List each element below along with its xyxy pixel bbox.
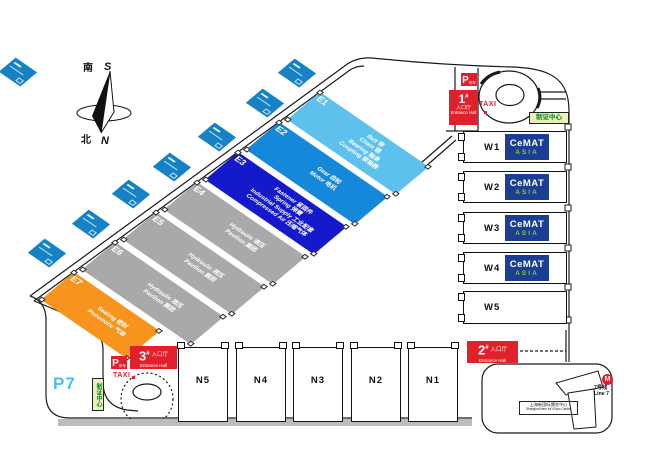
metro-station-name: 上海新国际博览中心 Shanghai New Int'l Expo Centre [519, 401, 578, 415]
hall-label: W1 [484, 142, 500, 153]
area-marking [169, 172, 178, 179]
hall-w3: W3CeMATASIA [463, 212, 567, 244]
hall-label: N4 [254, 375, 268, 386]
taxi-mark-icon [484, 111, 487, 114]
roundabout-1-inner [496, 85, 524, 106]
cemat-asia-text: ASIA [505, 149, 549, 156]
entrance-hall-1: 1# 入口厅 Entrance Hall [449, 90, 478, 125]
cemat-asia-text: ASIA [505, 230, 549, 237]
hall-n5: N5 [178, 347, 228, 422]
roundabout-1-stub [539, 92, 566, 99]
hall-n4: N4 [236, 347, 286, 422]
taxi-mark-icon [132, 376, 135, 379]
cemat-logo-text: CeMAT [505, 139, 549, 149]
area-marking [14, 62, 22, 68]
area-marking [293, 63, 301, 69]
hall-w5: W5 [463, 291, 567, 324]
cemat-logo-text: CeMAT [505, 260, 549, 270]
area-marking [123, 188, 137, 198]
entrance-2-en: Entrance Hall [467, 358, 518, 363]
hall-label: W4 [484, 263, 500, 274]
taxi-label: TAXI [113, 372, 130, 379]
entrance-hall-2: 2# 入口厅 Entrance Hall [467, 341, 518, 363]
parking-icon: P停车 [461, 73, 477, 86]
cemat-asia-logo: CeMATASIA [505, 215, 549, 241]
cemat-asia-logo: CeMATASIA [505, 255, 549, 281]
area-marking [209, 131, 223, 141]
expo-floor-plan: 南 S 北 N E1Belt 带Chain 链Bearing 轴承Couplin… [0, 0, 653, 468]
area-marking [289, 67, 303, 77]
credential-center-badge: 制证中心 [529, 112, 569, 124]
compass-south-label: S [104, 61, 111, 73]
hall-label: W5 [484, 302, 500, 313]
hall-n2: N2 [351, 347, 401, 422]
compass-north-label: N [101, 135, 109, 147]
credential-center-badge: 制证中心 [92, 378, 104, 411]
entrance-3-en: Entrance Hall [130, 363, 177, 368]
hall-label: N2 [369, 375, 383, 386]
area-marking [87, 214, 95, 220]
entrance-2-cn: 入口厅 [491, 347, 508, 353]
hall-w1: W1CeMATASIA [463, 131, 567, 163]
hall-n1: N1 [408, 347, 458, 422]
area-marking [261, 93, 269, 99]
entrance-hall-3: 3# 入口厅 Entrance Hall [130, 346, 177, 369]
roundabout-3-dotted [121, 373, 173, 425]
parking-icon: P停车 [111, 356, 127, 369]
roundabout-3-inner [133, 384, 161, 400]
hall-w4: W4CeMATASIA [463, 252, 567, 284]
area-marking [10, 66, 24, 76]
roundabout-1-arc-a [481, 72, 500, 84]
area-marking [39, 247, 53, 257]
hall-label: W2 [484, 182, 500, 193]
cemat-asia-logo: CeMATASIA [505, 174, 549, 200]
road-e1-stub [421, 136, 456, 167]
metro-line-label: 7号线Line 7 [594, 386, 620, 397]
area-marking [164, 161, 178, 171]
area-marking [168, 157, 176, 163]
area-marking [83, 218, 97, 228]
area-marking [44, 258, 53, 265]
hall-label: W3 [484, 223, 500, 234]
area-marking [294, 78, 303, 85]
area-marking [213, 127, 221, 133]
cemat-asia-text: ASIA [505, 270, 549, 277]
compass-south-cn: 南 [83, 59, 93, 74]
cemat-logo-text: CeMAT [505, 220, 549, 230]
entrance-2-number: 2# [478, 342, 489, 356]
parking-area-p7: P7 [53, 374, 76, 394]
hall-n3: N3 [293, 347, 343, 422]
taxi-label: TAXI [479, 101, 496, 108]
compass-icon [77, 71, 131, 133]
entrance-1-number: 1# [449, 91, 478, 105]
area-marking [43, 243, 51, 249]
roundabout-1-arc-b [537, 88, 540, 108]
cemat-asia-text: ASIA [505, 189, 549, 196]
compass-north-cn: 北 [81, 131, 91, 146]
hall-w2: W2CeMATASIA [463, 171, 567, 203]
cemat-asia-logo: CeMATASIA [505, 134, 549, 160]
area-marking [257, 97, 271, 107]
cemat-logo-text: CeMAT [505, 179, 549, 189]
entrance-3-number: 3# [139, 348, 150, 362]
hall-label: N5 [196, 375, 210, 386]
metro-logo-icon: M [602, 374, 613, 385]
entrance-1-en: Entrance Hall [449, 111, 478, 116]
area-marking [214, 142, 223, 149]
entrance-3-cn: 入口厅 [152, 352, 169, 358]
hall-label: N3 [311, 375, 325, 386]
area-marking [88, 229, 97, 236]
area-marking [15, 77, 24, 84]
area-marking [127, 184, 135, 190]
hall-label: N1 [426, 375, 440, 386]
area-marking [262, 108, 271, 115]
area-marking [128, 199, 137, 206]
